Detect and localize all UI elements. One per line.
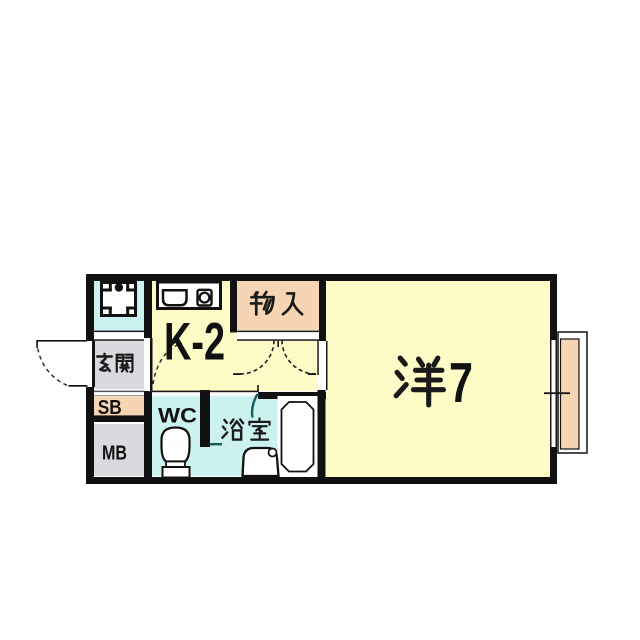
svg-text:SB: SB (98, 397, 122, 419)
svg-text:K-2: K-2 (164, 313, 225, 372)
svg-text:MB: MB (102, 443, 127, 465)
svg-text:7: 7 (449, 351, 473, 415)
svg-text:WC: WC (158, 405, 197, 428)
